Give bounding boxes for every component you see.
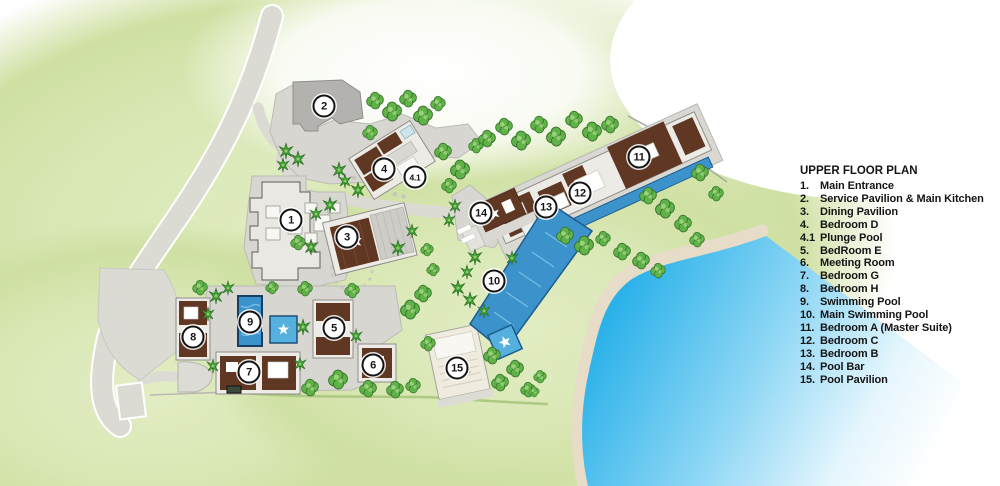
legend-item: 13. Bedroom B [800,348,998,361]
legend-item-label: Main Entrance [820,180,998,193]
legend-item: 5. BedRoom E [800,245,998,258]
legend-title: UPPER FLOOR PLAN [800,165,998,177]
legend-item-number: 11. [800,322,820,335]
legend-item-number: 1. [800,180,820,193]
legend-item-label: Bedroom A (Master Suite) [820,322,998,335]
building-bedroom-g [216,352,300,394]
legend: UPPER FLOOR PLAN 1. Main Entrance 2. Ser… [800,165,998,387]
building-meeting-room [358,344,396,382]
legend-item: 10. Main Swimming Pool [800,309,998,322]
legend-item: 4. Bedroom D [800,219,998,232]
legend-item: 2. Service Pavilion & Main Kitchen [800,193,998,206]
legend-item: 1. Main Entrance [800,180,998,193]
legend-item-label: Pool Pavilion [820,374,998,387]
legend-item: 4.1 Plunge Pool [800,232,998,245]
legend-item-label: Plunge Pool [820,232,998,245]
legend-item: 14. Pool Bar [800,361,998,374]
legend-item-label: Bedroom C [820,335,998,348]
legend-item: 8. Bedroom H [800,283,998,296]
legend-item: 9. Swimming Pool [800,296,998,309]
legend-item: 12. Bedroom C [800,335,998,348]
legend-item-label: Meeting Room [820,257,998,270]
legend-item-number: 4.1 [800,232,820,245]
legend-item-number: 5. [800,245,820,258]
floor-plan: 1 2 3 4 4.1 5 6 [0,0,1000,486]
legend-item-number: 4. [800,219,820,232]
legend-item-number: 12. [800,335,820,348]
legend-item-label: Bedroom H [820,283,998,296]
legend-item: 6. Meeting Room [800,257,998,270]
legend-item-label: Dining Pavilion [820,206,998,219]
legend-item-label: Main Swimming Pool [820,309,998,322]
legend-item: 11. Bedroom A (Master Suite) [800,322,998,335]
legend-item-number: 2. [800,193,820,206]
legend-item-number: 13. [800,348,820,361]
legend-item-label: BedRoom E [820,245,998,258]
legend-items: 1. Main Entrance 2. Service Pavilion & M… [800,180,998,387]
legend-item: 15. Pool Pavilion [800,374,998,387]
legend-item-label: Bedroom B [820,348,998,361]
legend-item-number: 10. [800,309,820,322]
legend-item-number: 14. [800,361,820,374]
spa-box [227,386,241,393]
legend-item-label: Bedroom D [820,219,998,232]
legend-item-number: 7. [800,270,820,283]
legend-item-number: 3. [800,206,820,219]
legend-item-number: 15. [800,374,820,387]
legend-item-number: 8. [800,283,820,296]
legend-item-label: Pool Bar [820,361,998,374]
legend-item-label: Swimming Pool [820,296,998,309]
legend-item: 3. Dining Pavilion [800,206,998,219]
legend-item-label: Bedroom G [820,270,998,283]
building-bedroom-e [313,300,353,358]
legend-item: 7. Bedroom G [800,270,998,283]
legend-item-number: 6. [800,257,820,270]
legend-item-number: 9. [800,296,820,309]
legend-item-label: Service Pavilion & Main Kitchen [820,193,998,206]
